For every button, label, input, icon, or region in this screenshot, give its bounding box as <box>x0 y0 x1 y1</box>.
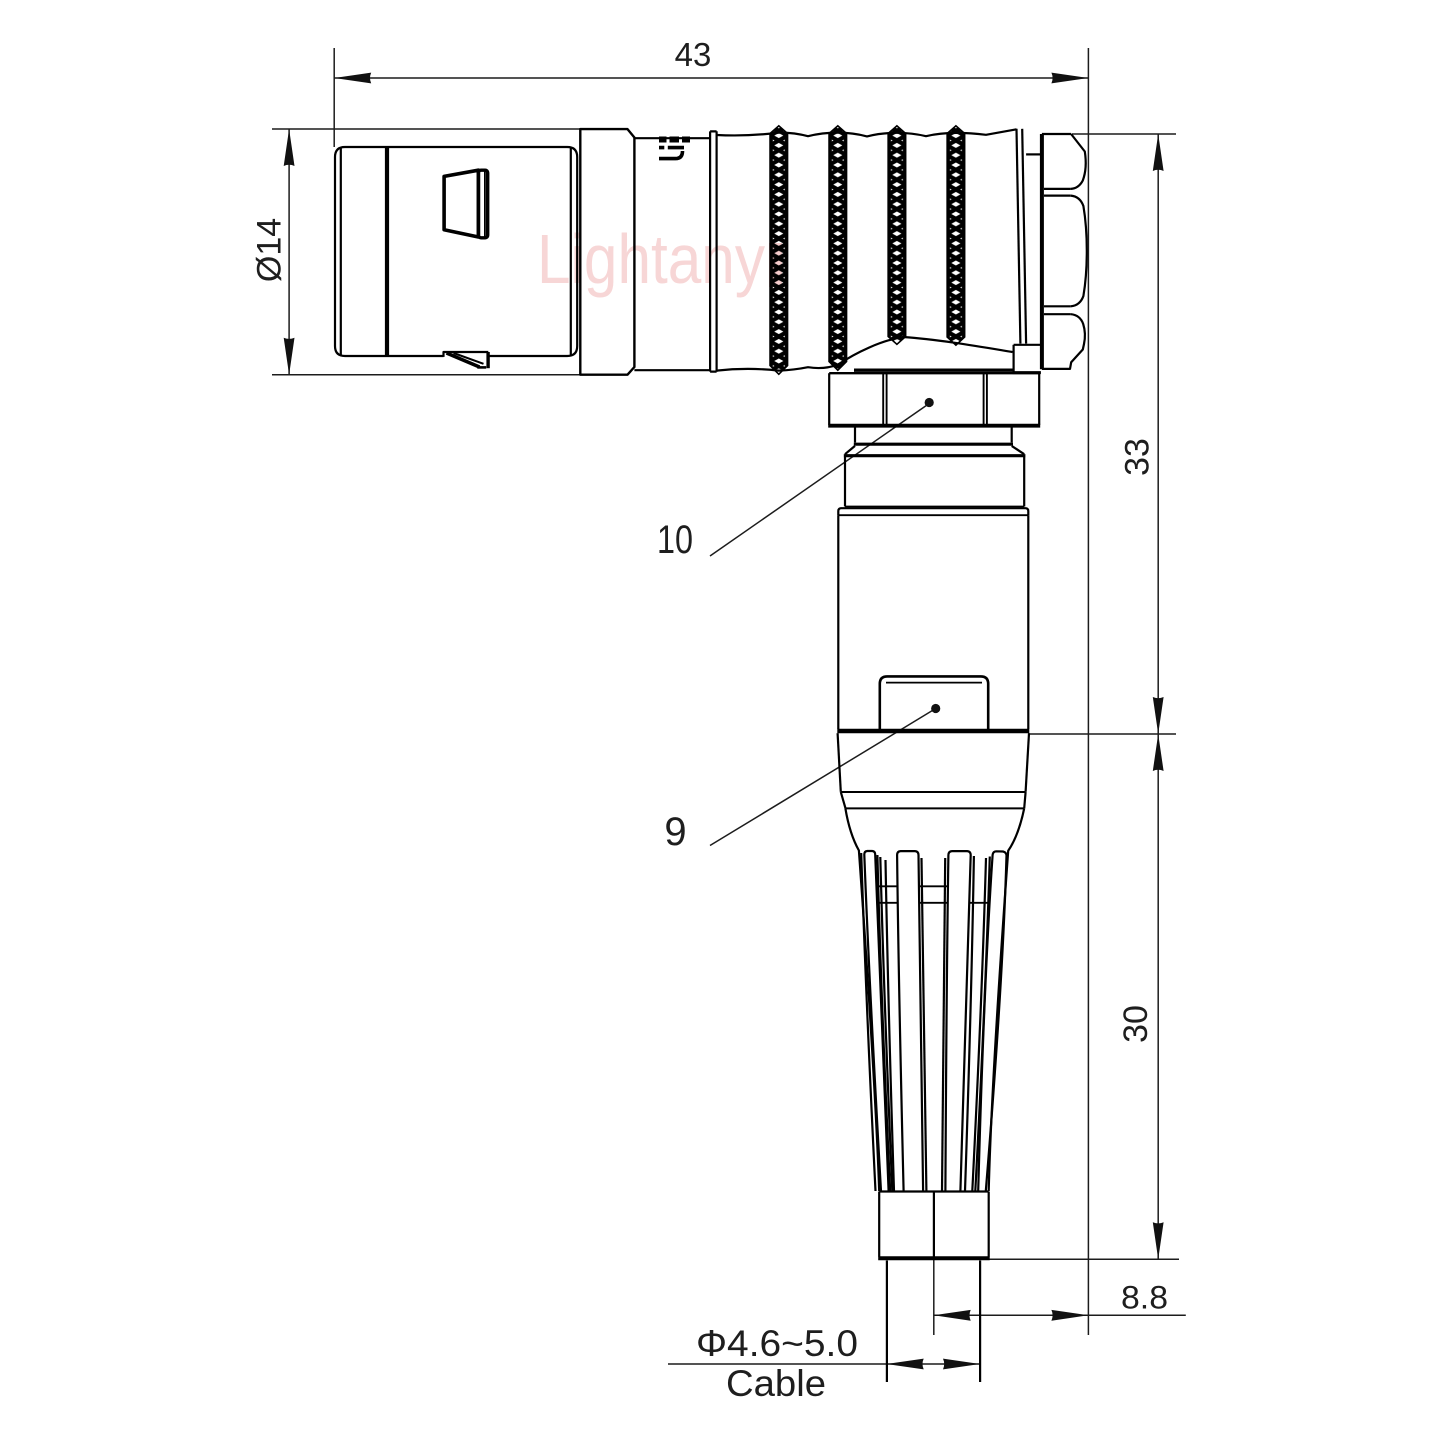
svg-text:43: 43 <box>675 36 712 73</box>
svg-text:30: 30 <box>1117 1005 1155 1043</box>
svg-text:8.8: 8.8 <box>1121 1280 1168 1316</box>
svg-text:Ø14: Ø14 <box>251 218 289 282</box>
svg-text:Φ4.6~5.0: Φ4.6~5.0 <box>696 1323 858 1364</box>
svg-text:Cable: Cable <box>726 1363 826 1404</box>
svg-text:9: 9 <box>664 810 686 854</box>
svg-text:10: 10 <box>657 518 693 562</box>
svg-text:33: 33 <box>1119 438 1157 476</box>
